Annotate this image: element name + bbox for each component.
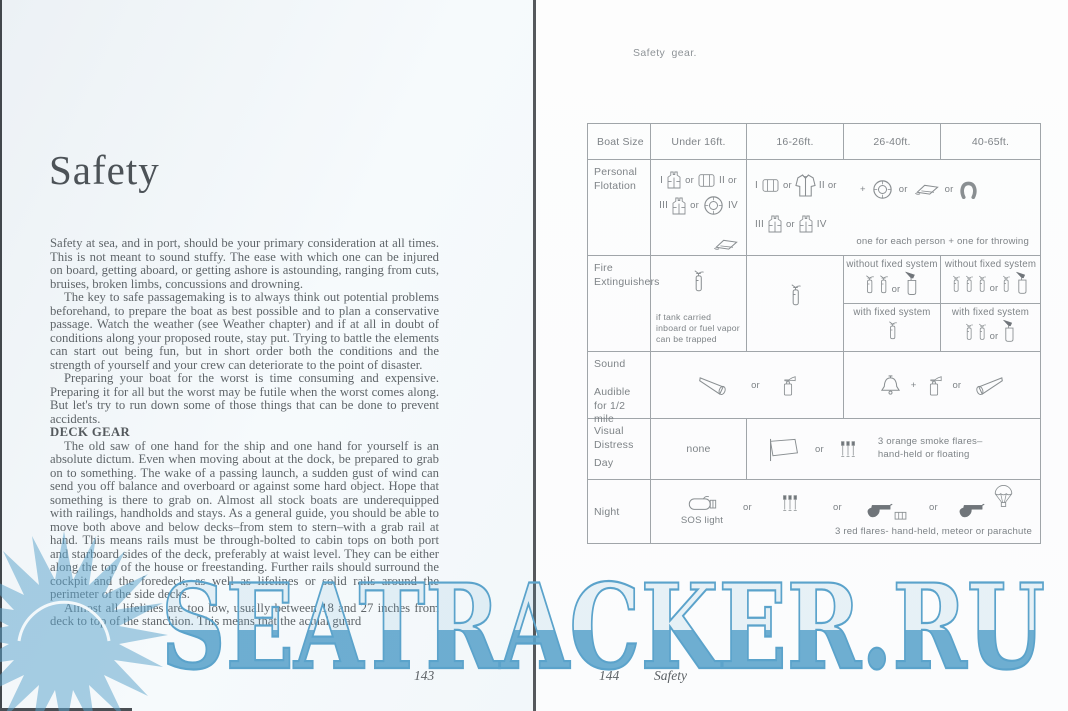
ring-buoy-icon (871, 178, 894, 201)
fire-extinguisher-icon (878, 273, 889, 295)
or-text: or (786, 219, 795, 230)
large-extinguisher-icon (1001, 319, 1017, 342)
running-title: Safety (654, 668, 687, 684)
fire-extinguisher-icon (1001, 273, 1011, 294)
numeral-four: IV (728, 200, 738, 211)
paragraph: The key to safe passagemaking is to alwa… (50, 291, 439, 372)
page-gutter (533, 0, 536, 711)
header-26-40ft: 26-40ft. (844, 124, 941, 160)
buoyant-cushion-icon (761, 178, 780, 193)
large-extinguisher-icon (1014, 271, 1030, 294)
red-flares-icon (781, 492, 799, 515)
header-16-26ft: 16-26ft. (747, 124, 844, 160)
visual-distress-label: Visual Distress (594, 425, 646, 453)
paragraph: Preparing your boat for the worst is tim… (50, 372, 439, 426)
vd-16-65ft-cell: or 3 orange smoke flares– hand-held or f… (747, 419, 1041, 480)
header-boat-size: Boat Size (588, 124, 651, 160)
or-text: or (751, 380, 760, 391)
fe-40-65ft-cell: without fixed system or with fixed syste… (941, 256, 1041, 352)
with-fixed-system-label: with fixed system (844, 307, 940, 318)
row-label-sound: Sound Audible for 1/2 mile (588, 352, 651, 419)
or-text: or (833, 502, 842, 513)
buoyant-cushion-icon (697, 173, 716, 188)
body-text: Safety at sea, and in port, should be yo… (50, 237, 439, 629)
sos-light-icon (687, 493, 718, 513)
fe-16-26ft-cell (747, 256, 844, 352)
horseshoe-buoy-icon (958, 180, 979, 199)
buoyant-cushion-icon (913, 183, 940, 196)
or-text: or (990, 283, 999, 294)
pf-note: one for each person + one for throwing (856, 236, 1029, 248)
bell-icon (880, 375, 901, 396)
ring-buoy-icon (702, 194, 725, 217)
parachute-flare-icon (993, 483, 1014, 508)
with-fixed-system-label: with fixed system (941, 307, 1040, 318)
distress-flag-icon (767, 437, 800, 462)
or-text: or (892, 284, 901, 295)
fire-extinguisher-icon (864, 273, 875, 295)
air-horn-icon (926, 373, 942, 398)
fire-extinguisher-icon (692, 268, 705, 293)
row-label-night: Night (588, 480, 651, 544)
plus-text: + (860, 184, 866, 195)
buoyant-jacket-icon (795, 173, 816, 198)
book-spread: Safety Safety at sea, and in port, shoul… (0, 0, 1068, 711)
or-text: or (728, 175, 737, 186)
or-text: or (783, 180, 792, 191)
day-label: Day (594, 457, 613, 471)
sos-light-label: SOS light (677, 515, 727, 526)
or-text: or (990, 331, 999, 342)
fire-extinguisher-icon (977, 273, 987, 294)
sound-label: Sound (594, 358, 646, 372)
paragraph: Almost all lifelines are too low, usuall… (50, 602, 439, 629)
numeral-two: II (719, 175, 725, 186)
chapter-title: Safety (49, 146, 160, 194)
life-vest-icon (666, 170, 682, 190)
vd-note: 3 orange smoke flares– hand-held or floa… (878, 436, 1010, 461)
sound-26-65ft-cell: + or (844, 352, 1041, 419)
fire-extinguisher-icon (977, 321, 987, 342)
right-page-number: 144 (599, 668, 619, 684)
figure-caption: Safety gear. (633, 47, 697, 59)
without-fixed-system-label: without fixed system (941, 259, 1040, 270)
numeral-two: II (819, 180, 825, 191)
night-cell: SOS light or or or 3 red flares- hand-he… (651, 480, 1041, 544)
buoyant-cushion-icon (712, 238, 739, 251)
life-vest-icon (767, 214, 783, 234)
flare-cartridges-icon (894, 511, 907, 520)
or-text: or (945, 184, 954, 195)
or-text: or (743, 502, 752, 513)
sound-under26-cell: or (651, 352, 844, 419)
vd-under16-cell: none (651, 419, 747, 480)
row-label-fire-extinguishers: Fire Extinguishers (588, 256, 651, 352)
paragraph: The old saw of one hand for the ship and… (50, 440, 439, 602)
section-heading: DECK GEAR (50, 426, 439, 440)
fe-26-40ft-cell: without fixed system or with fixed syste… (844, 256, 941, 352)
or-text: or (899, 184, 908, 195)
numeral-three: III (659, 200, 668, 211)
life-vest-icon (798, 214, 814, 234)
plus-text: + (911, 380, 917, 391)
left-page-number: 143 (414, 668, 434, 684)
row-label-visual-distress: Visual Distress Day (588, 419, 651, 480)
or-text: or (828, 180, 837, 191)
large-extinguisher-icon (903, 271, 920, 295)
or-text: or (952, 380, 961, 391)
air-horn-icon (780, 373, 796, 398)
or-text: or (685, 175, 694, 186)
scan-left-edge (0, 0, 2, 711)
numeral-one: I (660, 175, 663, 186)
header-40-65ft: 40-65ft. (941, 124, 1041, 160)
night-note: 3 red flares- hand-held, meteor or parac… (835, 526, 1032, 537)
hand-horn-icon (971, 375, 1004, 396)
numeral-one: I (755, 180, 758, 191)
hand-horn-icon (698, 375, 731, 396)
or-text: or (690, 200, 699, 211)
fire-extinguisher-icon (887, 319, 898, 341)
numeral-four: IV (817, 219, 827, 230)
without-fixed-system-label: without fixed system (844, 259, 940, 270)
numeral-three: III (755, 219, 764, 230)
row-label-personal-flotation: Personal Flotation (588, 160, 651, 256)
or-text: or (929, 502, 938, 513)
pf-under16-cell: I or II or III or IV (651, 160, 747, 256)
fire-extinguisher-icon (964, 273, 974, 294)
fire-extinguisher-icon (951, 273, 961, 294)
safety-gear-table: Boat Size Under 16ft. 16-26ft. 26-40ft. … (587, 123, 1041, 544)
smoke-flares-icon (839, 438, 857, 461)
fe-under16-cell: if tank carried inboard or fuel vapor ca… (651, 256, 747, 352)
fire-extinguisher-icon (789, 282, 802, 307)
or-text: or (815, 444, 824, 455)
flare-pistol-icon (865, 500, 893, 519)
fire-extinguisher-icon (964, 321, 974, 342)
life-vest-icon (671, 196, 687, 216)
pf-16-65ft-cell: I or II or + or or III or IV (747, 160, 1041, 256)
paragraph: Safety at sea, and in port, should be yo… (50, 237, 439, 291)
header-under-16ft: Under 16ft. (651, 124, 747, 160)
flare-pistol-icon (957, 500, 985, 519)
fe-under16-note: if tank carried inboard or fuel vapor ca… (656, 312, 744, 345)
